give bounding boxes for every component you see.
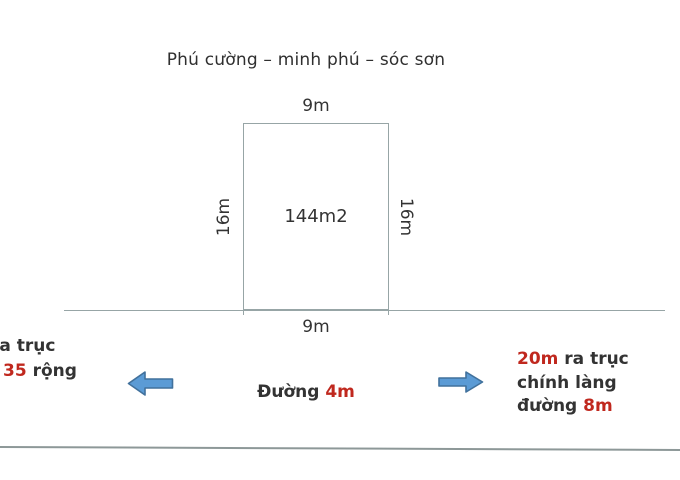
plot-height-right-label: 16m (394, 187, 418, 247)
right-note-line1-rest: ra trục (558, 349, 628, 369)
right-note-road-width-value: 8m (583, 396, 613, 416)
right-note-line3: đường 8m (517, 395, 629, 419)
road-edge-line (64, 310, 665, 311)
land-plot-diagram: Phú cường – minh phú – sóc sơn 9m 144m2 … (0, 0, 680, 480)
right-note-line2: chính làng (517, 372, 629, 396)
right-note-line3-prefix: đường (517, 396, 583, 416)
plot-width-top-label: 9m (243, 96, 389, 116)
left-note-line2-rest: rộng (27, 361, 77, 381)
left-arrow-shape (129, 372, 173, 395)
left-note-line1: ra trục (0, 334, 55, 358)
diagram-title: Phú cường – minh phú – sóc sơn (0, 50, 612, 70)
lower-boundary-line (0, 446, 680, 451)
plot-right-edge-tick (388, 310, 389, 315)
road-width-value: 4m (325, 382, 355, 402)
plot-area-label: 144m2 (243, 123, 389, 310)
right-note: 20m ra trục chính làng đường 8m (517, 348, 629, 419)
right-note-line1: 20m ra trục (517, 348, 629, 372)
plot-left-edge-tick (243, 310, 244, 315)
plot-width-bottom-label: 9m (243, 317, 389, 337)
plot-height-left-label: 16m (212, 187, 236, 247)
road-label: Đường 4m (250, 382, 362, 402)
right-arrow-icon (438, 370, 484, 394)
right-note-distance-value: 20m (517, 349, 558, 369)
left-arrow-icon (127, 369, 174, 398)
right-arrow-shape (439, 372, 483, 392)
road-label-prefix: Đường (257, 382, 325, 402)
left-note-line2: 35 rộng (3, 359, 77, 383)
left-note-width-value: 35 (3, 361, 27, 381)
